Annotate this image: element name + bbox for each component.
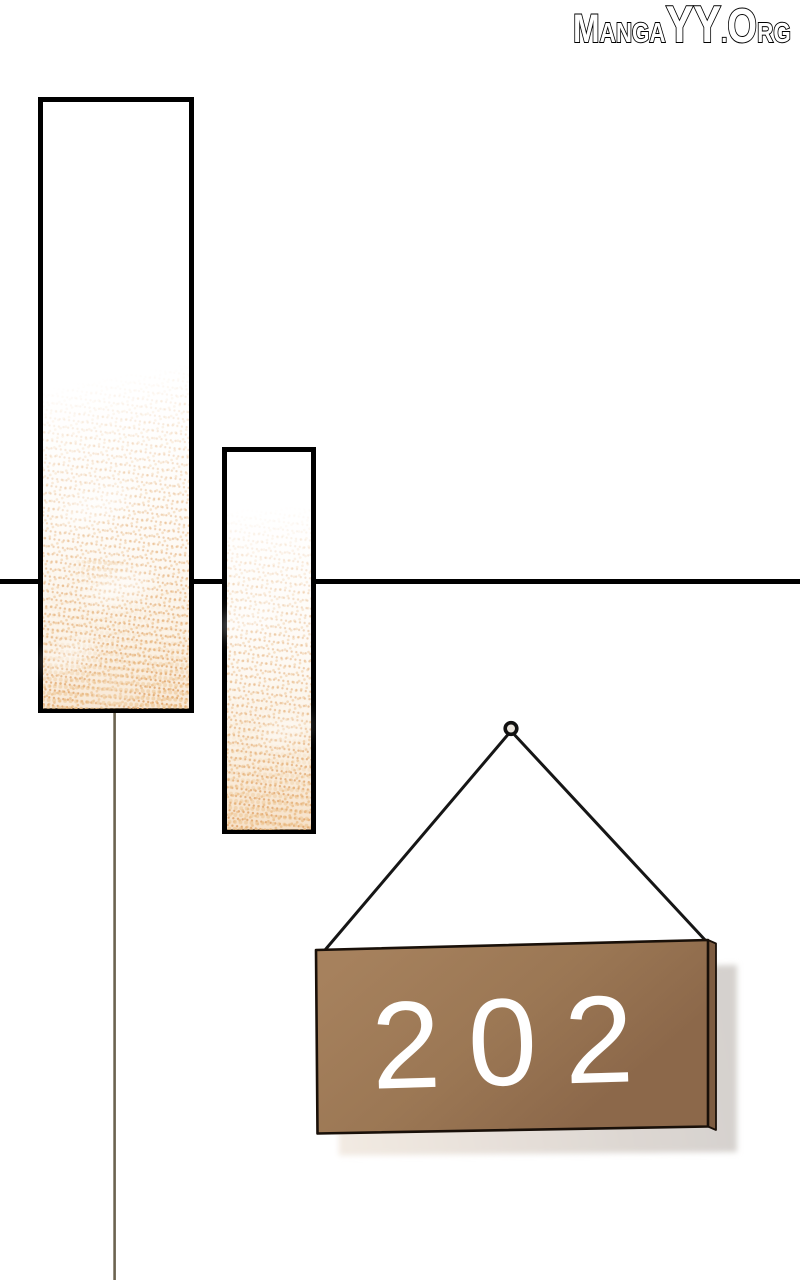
svg-text:202: 202 <box>370 970 663 1116</box>
